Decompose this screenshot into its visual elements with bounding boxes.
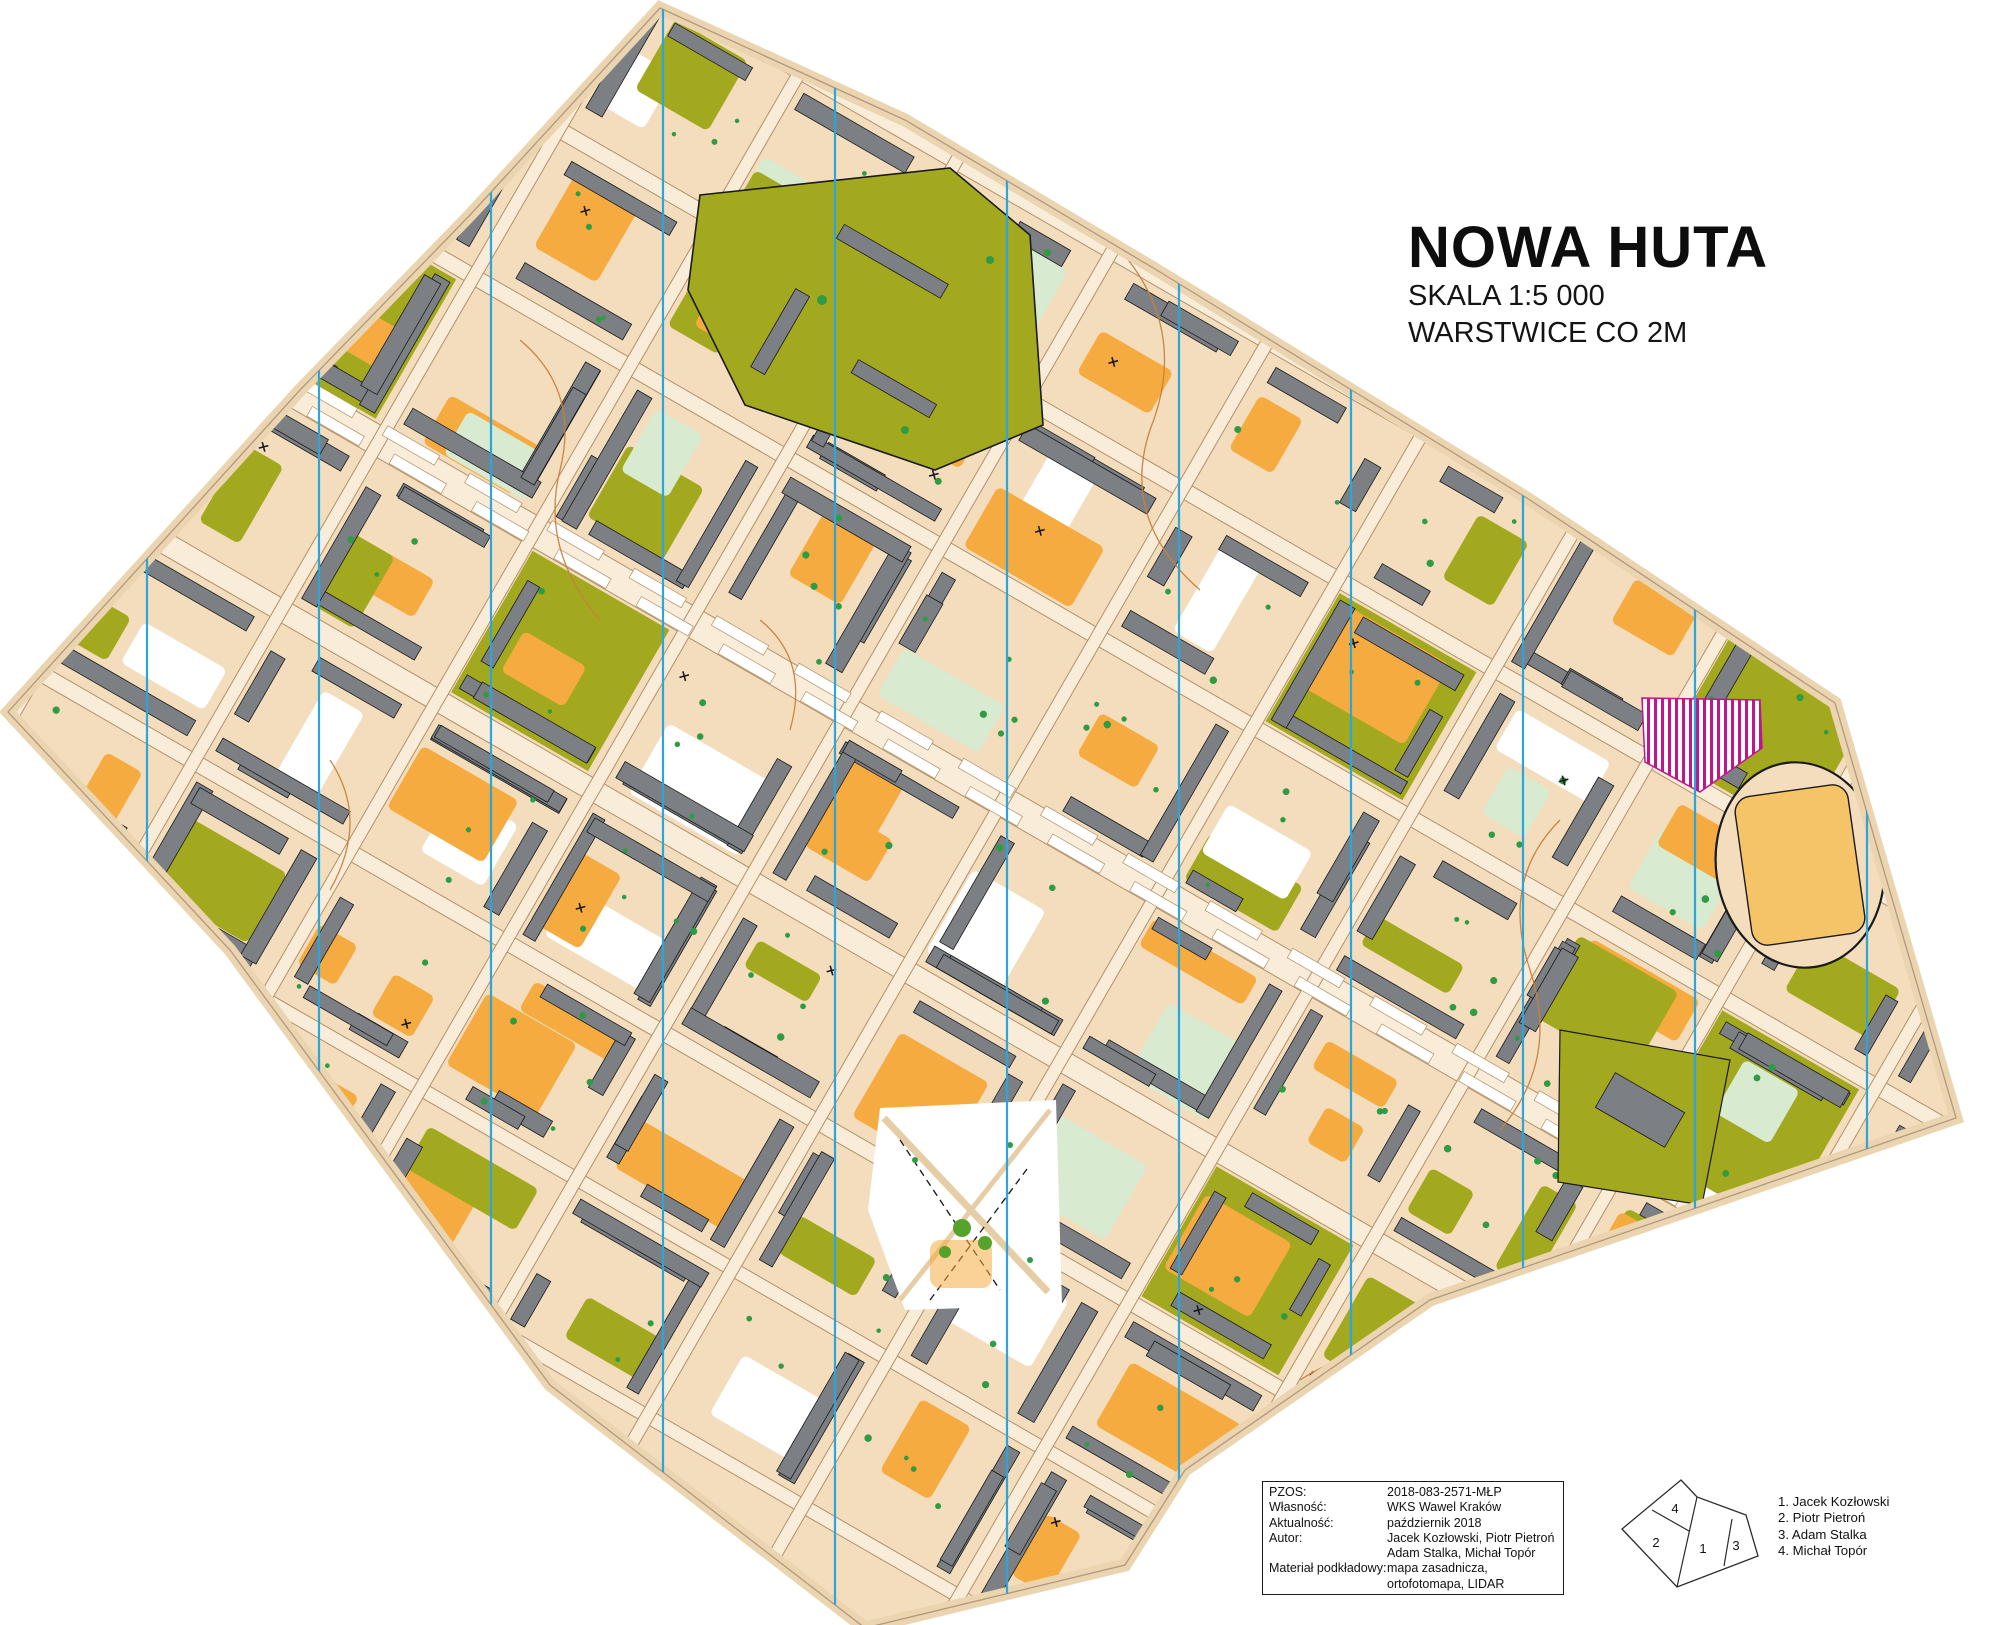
info-row: Własność: WKS Wawel Kraków [1269,1500,1557,1515]
info-row: Autor: Jacek Kozłowski, Piotr Pietroń [1269,1531,1557,1546]
sector-diagram: 4 2 1 3 [1590,1462,1790,1625]
map-scale-label: SKALA 1:5 000 [1408,278,1768,315]
sector-number: 1 [1699,1541,1706,1556]
info-value: ortofotomapa, LIDAR [1387,1577,1557,1592]
info-row: Materiał podkładowy: mapa zasadnicza, [1269,1561,1557,1576]
info-label: Własność: [1269,1500,1387,1515]
sector-number: 4 [1671,1501,1678,1516]
info-label [1269,1577,1387,1592]
author-item: 3. Adam Stalka [1778,1527,1889,1543]
info-label: PZOS: [1269,1485,1387,1500]
info-value: WKS Wawel Kraków [1387,1500,1557,1515]
author-item: 1. Jacek Kozłowski [1778,1494,1889,1510]
info-label: Autor: [1269,1531,1387,1546]
map-title: NOWA HUTA [1408,218,1768,278]
info-row: Aktualność: październik 2018 [1269,1516,1557,1531]
page: NOWA HUTA SKALA 1:5 000 WARSTWICE CO 2M … [0,0,2000,1625]
author-item: 4. Michał Topór [1778,1543,1889,1559]
sector-number: 3 [1732,1538,1739,1553]
info-value: 2018-083-2571-MŁP [1387,1485,1557,1500]
author-list: 1. Jacek Kozłowski 2. Piotr Pietroń 3. A… [1778,1494,1889,1559]
sector-number: 2 [1652,1535,1659,1550]
info-value: Jacek Kozłowski, Piotr Pietroń [1387,1531,1557,1546]
info-label [1269,1546,1387,1561]
info-row: Adam Stalka, Michał Topór [1269,1546,1557,1561]
info-value: mapa zasadnicza, [1387,1561,1557,1576]
info-value: październik 2018 [1387,1516,1557,1531]
author-item: 2. Piotr Pietroń [1778,1510,1889,1526]
map-info-box: PZOS: 2018-083-2571-MŁP Własność: WKS Wa… [1262,1481,1564,1595]
title-block: NOWA HUTA SKALA 1:5 000 WARSTWICE CO 2M [1408,218,1768,352]
info-value: Adam Stalka, Michał Topór [1387,1546,1557,1561]
info-label: Aktualność: [1269,1516,1387,1531]
info-row: ortofotomapa, LIDAR [1269,1577,1557,1592]
info-row: PZOS: 2018-083-2571-MŁP [1269,1485,1557,1500]
info-label: Materiał podkładowy: [1269,1561,1387,1576]
contour-interval-label: WARSTWICE CO 2M [1408,315,1768,352]
